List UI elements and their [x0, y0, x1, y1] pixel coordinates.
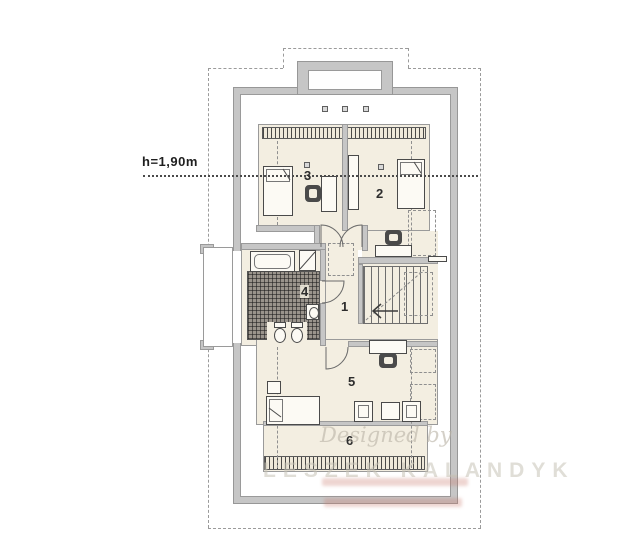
toilet-bowl — [274, 328, 286, 343]
room-label-5: 5 — [348, 375, 355, 388]
bathtub-basin — [254, 254, 291, 269]
pillow-room2 — [400, 162, 422, 175]
room-label-1: 1 — [341, 300, 348, 313]
chair-seat-room5 — [384, 357, 393, 364]
wall-bathroom-top — [241, 243, 326, 250]
wardrobe-room2 — [348, 155, 359, 210]
roof-outline-top-left — [208, 68, 283, 69]
left-window-bay — [203, 247, 233, 347]
bed-room2 — [397, 159, 425, 209]
armchair-room5-right — [402, 401, 421, 422]
lobby-void-dashed — [328, 243, 354, 276]
room5-slope-dashed-upper — [410, 349, 436, 373]
radiator — [428, 256, 447, 262]
chair-room5 — [379, 353, 397, 368]
roof-window-marker-top-1 — [322, 106, 328, 112]
roof-window-marker-top-2 — [342, 106, 348, 112]
chair-seat-room3 — [309, 189, 317, 198]
armchair-room5-left — [354, 401, 373, 422]
roof-outline-bottom — [208, 528, 481, 529]
roof-window-marker-room2 — [378, 164, 384, 170]
roof-outline-notch-top — [283, 48, 408, 49]
bathtub — [250, 251, 295, 272]
nightstand-room5 — [267, 381, 281, 394]
desk-room2 — [375, 245, 412, 257]
armchair-left-seat — [358, 405, 369, 418]
roof-window-marker-top-3 — [363, 106, 369, 112]
bidet-bowl — [291, 328, 303, 343]
watermark-url-strip-top — [322, 478, 468, 486]
chair-room3 — [305, 185, 321, 202]
wall-bathroom-right-lower — [320, 303, 326, 346]
wall-stairwell-top — [358, 257, 438, 264]
desk-room3 — [321, 176, 337, 212]
roof-outline-top-right — [408, 68, 481, 69]
wall-under-room3 — [256, 225, 316, 232]
lobby-stub-right — [362, 225, 368, 251]
chair-seat-room2 — [389, 234, 398, 241]
dormer-window — [308, 70, 382, 90]
desk-room5 — [369, 340, 407, 354]
wall-bathroom-right-upper — [320, 249, 326, 281]
roof-outline-notch-right — [408, 48, 409, 68]
bed-room3 — [263, 166, 293, 216]
roof-outline-notch-left — [283, 48, 284, 68]
room-label-4: 4 — [300, 285, 309, 298]
height-annotation: h=1,90m — [142, 155, 198, 168]
room-label-3: 3 — [304, 169, 311, 182]
room-label-2: 2 — [376, 187, 383, 200]
shower — [299, 250, 316, 271]
chair-room2 — [385, 230, 402, 245]
washbasin — [306, 304, 319, 320]
washbasin-bowl — [309, 307, 319, 319]
armchair-right-seat — [406, 405, 417, 418]
coffee-table-room5 — [381, 402, 400, 420]
room2-slope-dashed — [408, 210, 436, 256]
stairs-landing-dashed — [404, 272, 433, 316]
bed-room5 — [266, 396, 320, 425]
watermark-url-strip-bottom — [324, 498, 462, 507]
floor-plan: h=1,90m 1 2 3 4 5 6 Designed by LESZEK K… — [0, 0, 638, 556]
pillow-room5 — [269, 399, 283, 422]
watermark-script: Designed by — [320, 424, 452, 446]
